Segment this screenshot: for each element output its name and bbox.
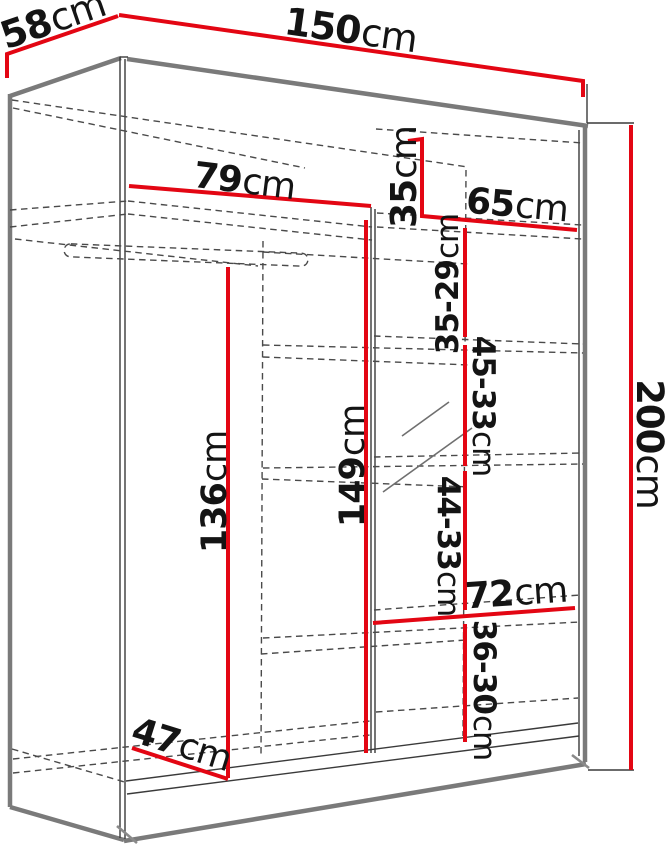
label-shelf-gap-1-value: 35-29 [430, 260, 466, 354]
label-shelf-gap-4-unit: cm [466, 715, 502, 760]
label-shelf-gap-4: 36-30cm [466, 620, 502, 760]
label-shelf-gap-3: 44-33cm [430, 476, 466, 616]
label-right-shelf-width-value: 65 [464, 181, 515, 226]
left-shelf-side-a [10, 201, 128, 210]
label-hanging-height: 136cm [195, 431, 235, 553]
label-bottom-shelf-width: 72cm [464, 570, 569, 618]
label-interior-height-unit: cm [333, 405, 373, 456]
right-shelf2-bottom [263, 345, 583, 353]
label-bottom-left-width: 47cm [127, 710, 237, 780]
diagram-canvas: 58cm 150cm 200cm 79cm 35cm 65cm 35-29cm … [0, 0, 665, 857]
label-shelf-gap-2-value: 45-33 [465, 336, 501, 430]
label-shelf-gap-4-value: 36-30 [466, 620, 502, 715]
front-bottom-edge [124, 764, 586, 841]
label-hanging-height-value: 136 [195, 483, 235, 553]
label-width: 150cm [282, 0, 420, 61]
label-top-shelf-height: 35cm [384, 126, 425, 228]
wardrobe-outline [10, 57, 634, 843]
label-shelf-gap-2: 45-33cm [465, 336, 501, 476]
label-width-unit: cm [358, 10, 420, 61]
label-shelf-gap-3-value: 44-33 [430, 476, 466, 570]
label-shelf-gap-2-unit: cm [465, 431, 501, 476]
top-back-edge-2 [13, 108, 305, 168]
divider-back-edge [261, 241, 263, 757]
mirror-stroke-1 [402, 402, 449, 436]
label-right-shelf-width-unit: cm [513, 185, 569, 230]
label-hanging-height-unit: cm [195, 431, 235, 482]
label-bottom-shelf-width-unit: cm [513, 570, 569, 615]
label-shelf-gap-1-unit: cm [430, 214, 466, 259]
clothes-rail-rod [64, 244, 308, 267]
label-top-shelf-height-value: 35 [384, 180, 425, 228]
label-shelf-gap-3-unit: cm [430, 571, 466, 616]
left-floor-corner [12, 749, 128, 783]
side-top-edge [10, 58, 121, 96]
label-height-unit: cm [628, 454, 665, 508]
label-top-shelf-height-unit: cm [384, 126, 425, 179]
wardrobe-dimension-diagram: 58cm 150cm 200cm 79cm 35cm 65cm 35-29cm … [0, 0, 665, 857]
label-bottom-shelf-width-value: 72 [464, 573, 515, 617]
dimension-labels: 58cm 150cm 200cm 79cm 35cm 65cm 35-29cm … [0, 0, 665, 780]
left-shelf-bottom [128, 214, 372, 240]
left-shelf-side-b [10, 214, 128, 227]
label-interior-height-value: 149 [333, 457, 373, 527]
right-shelf3-bottom [263, 464, 583, 468]
clothes-rail [64, 244, 308, 267]
label-depth: 58cm [0, 0, 111, 58]
label-left-shelf-width-unit: cm [240, 161, 297, 208]
label-height-value: 200 [628, 379, 665, 453]
left-shelf-back [15, 239, 258, 266]
label-left-shelf-width-value: 79 [191, 155, 244, 202]
label-width-value: 150 [282, 0, 364, 53]
front-top-edge [127, 59, 588, 126]
dimension-lines [7, 15, 631, 779]
right-shelf4-back [261, 640, 466, 654]
label-interior-height: 149cm [333, 405, 373, 527]
label-shelf-gap-1: 35-29cm [430, 214, 466, 354]
label-height: 200cm [628, 379, 665, 509]
side-bottom-edge [10, 807, 124, 840]
right-shelf4-bottom [263, 622, 580, 638]
label-left-shelf-width: 79cm [191, 155, 297, 208]
